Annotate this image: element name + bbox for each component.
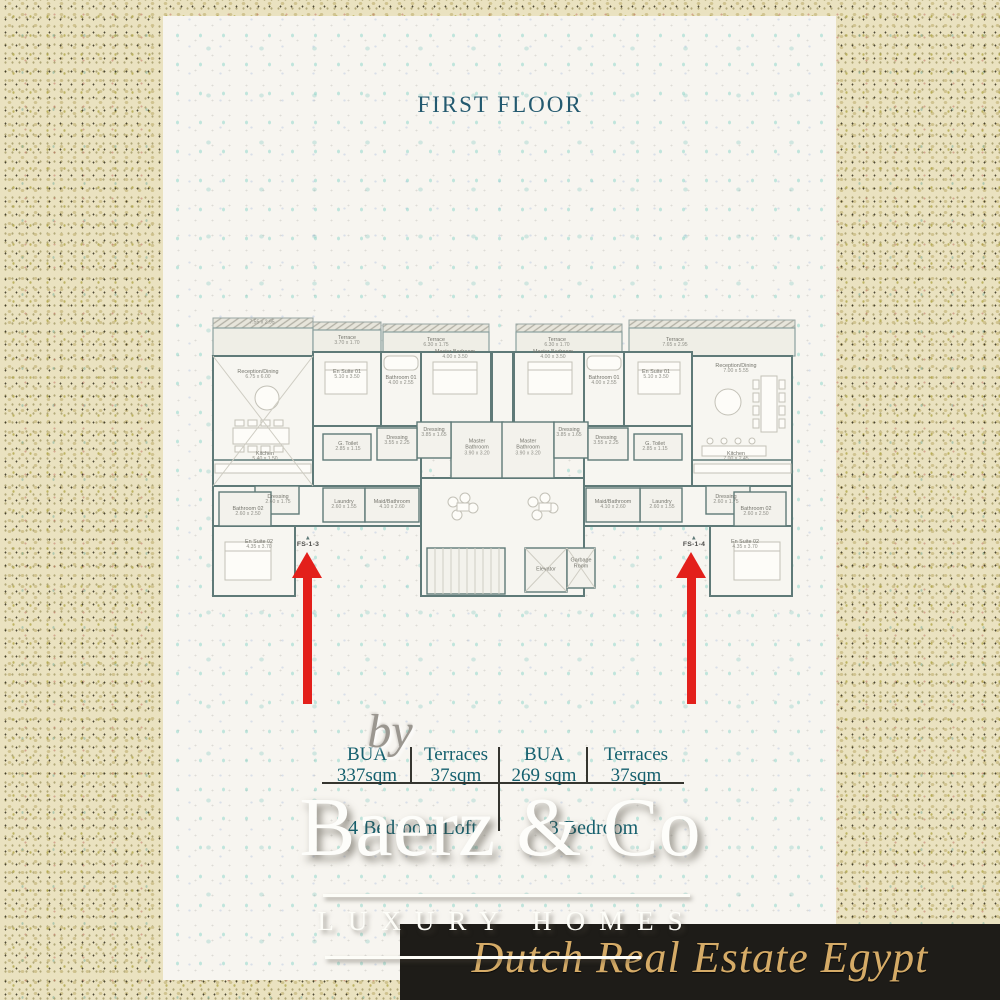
unit-marker-fs-1-3: ▲FS-1-3 — [297, 535, 319, 548]
room-label: En Suite 024.35 x 3.70 — [245, 538, 273, 550]
stats-horizontal-rule — [322, 782, 684, 784]
page-title: FIRST FLOOR — [340, 92, 660, 118]
room-label: Master Bathroom3.90 x 3.20 — [461, 438, 492, 456]
room-label: Bathroom 014.00 x 2.55 — [589, 374, 620, 386]
stats-divider — [586, 747, 588, 782]
room-label: Reception/Dining6.75 x 6.00 — [237, 368, 278, 380]
stats-divider — [410, 747, 412, 782]
room-label: Dressing3.55 x 2.25 — [384, 434, 409, 446]
room-label: Garbage Room — [565, 557, 596, 569]
arrow-head-icon — [292, 552, 322, 578]
agency-banner-text: Dutch Real Estate Egypt — [400, 932, 1000, 983]
room-label: Dressing2.60 x 1.75 — [713, 493, 738, 505]
room-label: Master Bathroom3.90 x 3.20 — [512, 438, 543, 456]
room-label: Terrace6.30 x 1.75 — [423, 336, 448, 348]
stats-center-divider — [498, 747, 500, 831]
arrow-head-icon — [676, 552, 706, 578]
highlight-arrow-right — [676, 552, 706, 704]
room-label: Terrace3.70 x 1.70 — [334, 334, 359, 346]
stats-bua-left: BUA 337sqm — [322, 742, 412, 787]
room-label: Dressing3.55 x 2.25 — [593, 434, 618, 446]
room-label: G. Toilet2.85 x 1.15 — [335, 440, 360, 452]
room-label: G. Toilet2.85 x 1.15 — [642, 440, 667, 452]
room-label: Master Bedroom4.00 x 3.50 — [435, 348, 475, 360]
room-label: Terrace6.30 x 1.70 — [544, 336, 569, 348]
room-label: Kitchen7.00 x 2.45 — [723, 450, 748, 462]
stats-bua-right: BUA 269 sqm — [500, 742, 588, 787]
room-label: Bathroom 022.60 x 2.50 — [741, 505, 772, 517]
room-label: Dressing3.85 x 1.65 — [556, 426, 581, 438]
unit-marker-fs-1-4: ▲FS-1-4 — [683, 535, 705, 548]
room-label: Dressing3.85 x 1.65 — [421, 426, 446, 438]
room-label: En Suite 015.10 x 3.50 — [333, 368, 361, 380]
room-label: Laundry2.60 x 1.55 — [649, 498, 674, 510]
room-label: Terrace7.65 x 2.95 — [662, 336, 687, 348]
room-label: Kitchen5.40 x 1.50 — [252, 450, 277, 462]
stats-terraces-right: Terraces 37sqm — [588, 742, 684, 787]
room-label: Dressing2.60 x 1.75 — [265, 493, 290, 505]
arrow-shaft — [303, 578, 312, 704]
room-label: Maid/Bathroom4.10 x 2.60 — [374, 498, 411, 510]
room-label: Laundry2.60 x 1.55 — [331, 498, 356, 510]
room-label: En Suite 024.35 x 3.70 — [731, 538, 759, 550]
unit-type-left: 4 Bedroom Loft — [322, 817, 503, 840]
room-label: Reception/Dining7.00 x 5.55 — [715, 362, 756, 374]
room-label: 7.55 x 2.95 — [249, 319, 274, 325]
room-label: En Suite 015.10 x 3.50 — [642, 368, 670, 380]
room-label: Master Bedroom4.00 x 3.50 — [533, 348, 573, 360]
area-stats-table: BUA 337sqm Terraces 37sqm BUA 269 sqm Te… — [322, 742, 684, 840]
highlight-arrow-left — [292, 552, 322, 704]
room-label: Bathroom 022.60 x 2.50 — [233, 505, 264, 517]
room-label: Maid/Bathroom4.10 x 2.60 — [595, 498, 632, 510]
unit-type-right: 3 Bedroom — [503, 817, 684, 840]
agency-banner: Dutch Real Estate Egypt — [400, 924, 1000, 1000]
stats-terraces-left: Terraces 37sqm — [412, 742, 500, 787]
room-label: Bathroom 014.00 x 2.55 — [386, 374, 417, 386]
room-label: Elevator — [536, 566, 556, 572]
arrow-shaft — [687, 578, 696, 704]
